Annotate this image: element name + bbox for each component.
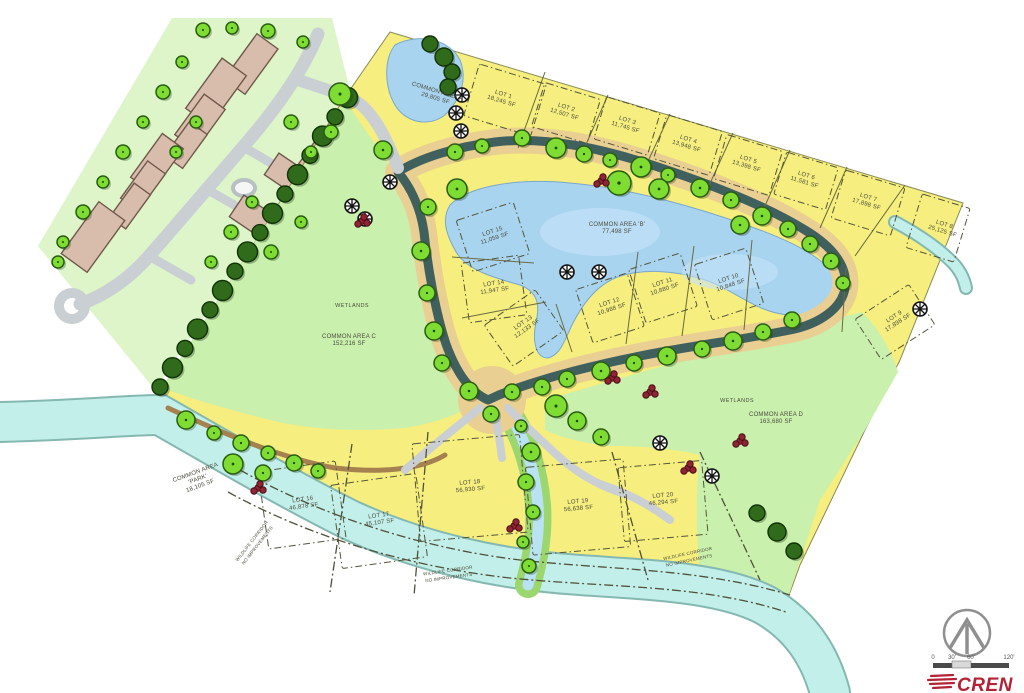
conifer-symbol-icon: [653, 436, 667, 450]
evergreen-tree-icon: [749, 505, 765, 521]
scale-tick-label: 30': [948, 655, 956, 661]
site-plan-drawing: LOT 118,245 SFLOT 212,507 SFLOT 311,745 …: [0, 0, 1024, 693]
evergreen-tree-icon: [152, 379, 168, 395]
evergreen-tree-icon: [263, 203, 283, 223]
cul-de-sac-island: [233, 180, 255, 196]
cren-logo-text: CREN: [957, 675, 1014, 693]
evergreen-tree-icon: [188, 319, 208, 339]
common-area-label: COMMON AREA'PARK'18,105 SF: [172, 462, 224, 497]
conifer-symbol-icon: [345, 199, 359, 213]
scale-tick-label: 0: [931, 655, 935, 661]
evergreen-tree-icon: [227, 263, 243, 279]
conifer-symbol-icon: [383, 175, 397, 189]
evergreen-tree-icon: [288, 165, 308, 185]
north-arrow-icon: [944, 610, 990, 656]
scale-tick-label: 120': [1003, 655, 1014, 661]
site-plan-page: LOT 118,245 SFLOT 212,507 SFLOT 311,745 …: [0, 0, 1024, 693]
conifer-symbol-icon: [454, 124, 468, 138]
wildlife-corridor-label: WILDLIFE CORRIDORNO IMPROVEMENTS: [234, 519, 275, 566]
evergreen-tree-icon: [202, 302, 218, 318]
pond-highlight: [540, 208, 660, 256]
evergreen-tree-icon: [327, 109, 343, 125]
cren-feather-icon: [928, 675, 956, 688]
conifer-symbol-icon: [705, 469, 719, 483]
conifer-symbol-icon: [449, 106, 463, 120]
conifer-symbol-icon: [560, 265, 574, 279]
scale-bar: 030'60'120': [931, 655, 1014, 668]
evergreen-tree-icon: [444, 64, 460, 80]
evergreen-tree-icon: [422, 36, 438, 52]
evergreen-tree-icon: [238, 242, 258, 262]
evergreen-tree-icon: [786, 543, 802, 559]
wetlands-label: WETLANDS: [335, 303, 369, 309]
scale-tick-label: 60': [967, 655, 975, 661]
evergreen-tree-icon: [252, 225, 268, 241]
wetlands-label: WETLANDS: [720, 398, 754, 404]
evergreen-tree-icon: [435, 48, 453, 66]
conifer-symbol-icon: [592, 265, 606, 279]
evergreen-tree-icon: [177, 340, 193, 356]
evergreen-tree-icon: [277, 186, 293, 202]
evergreen-tree-icon: [163, 358, 183, 378]
evergreen-tree-icon: [768, 523, 786, 541]
evergreen-tree-icon: [213, 281, 233, 301]
conifer-symbol-icon: [913, 302, 927, 316]
cren-logo: CREN: [928, 675, 1014, 693]
